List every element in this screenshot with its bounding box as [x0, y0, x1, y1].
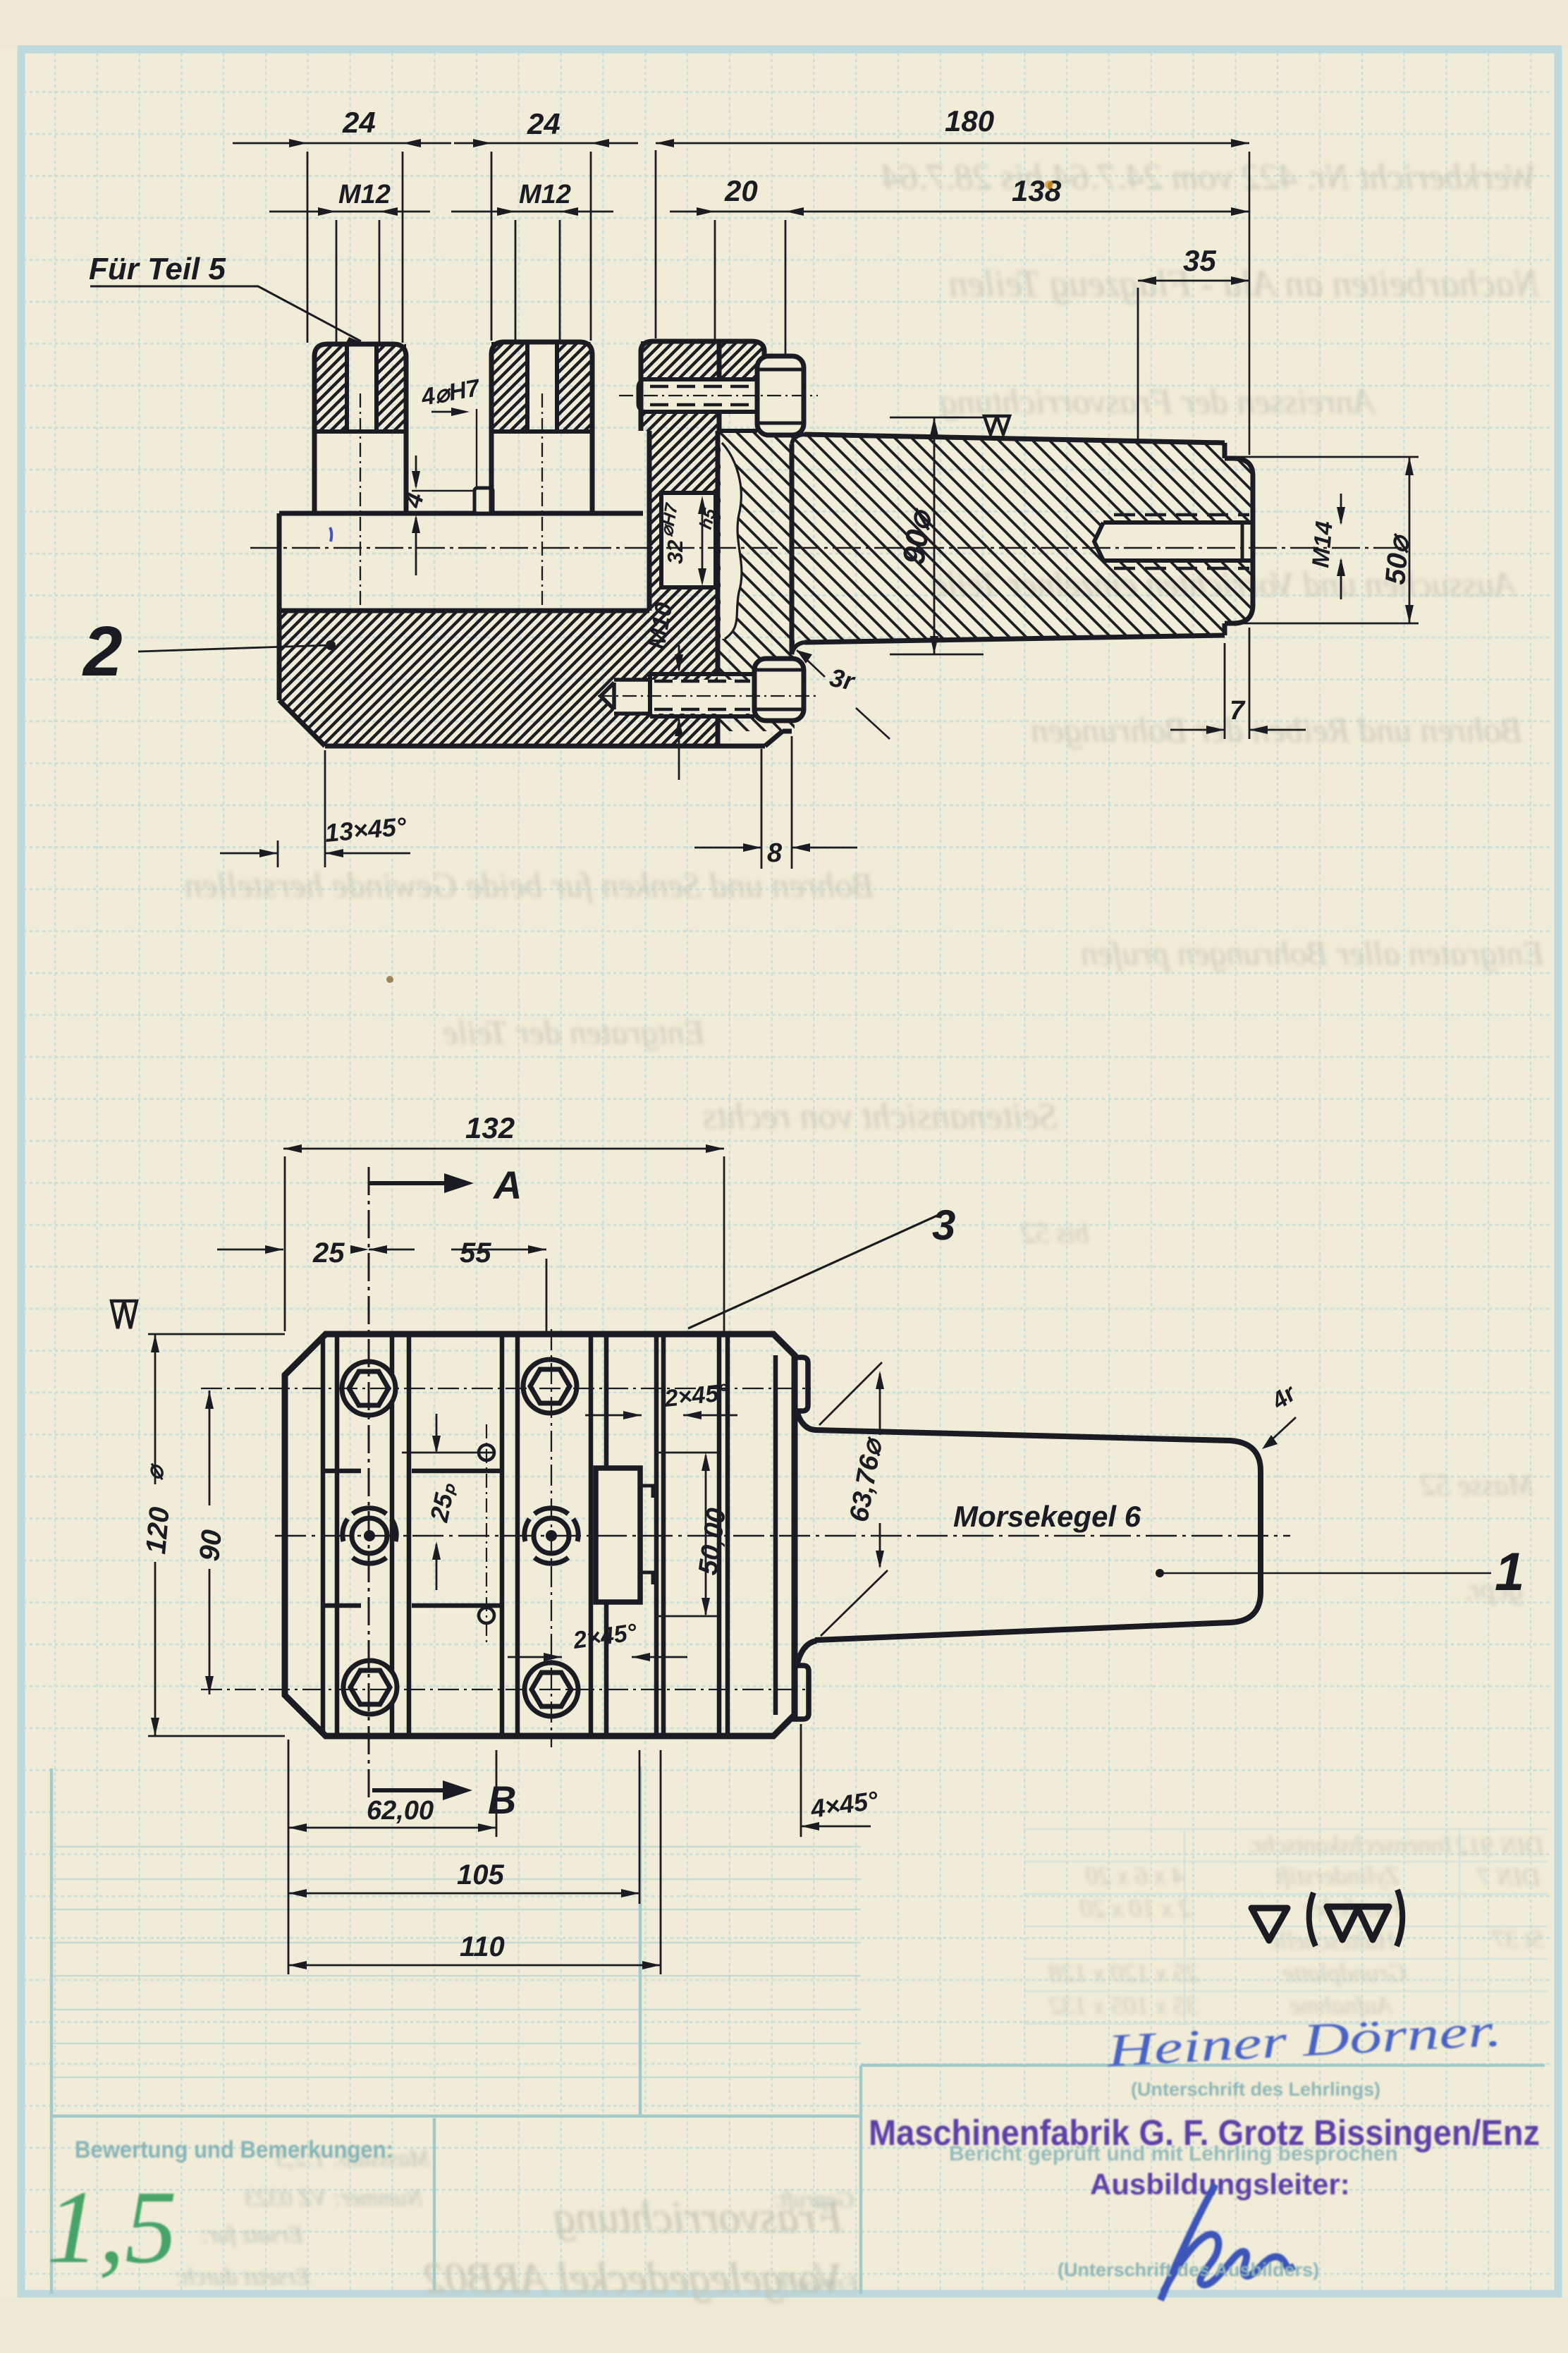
svg-text:50⌀: 50⌀ [1380, 532, 1415, 586]
svg-text:25 x 120 x 128: 25 x 120 x 128 [1049, 1959, 1199, 1987]
svg-text:Ausbildungsleiter:: Ausbildungsleiter: [1090, 2168, 1350, 2201]
svg-text:55: 55 [460, 1237, 491, 1269]
svg-text:bis 52: bis 52 [1021, 1217, 1089, 1249]
svg-text:35: 35 [1183, 244, 1216, 277]
svg-text:1,5: 1,5 [47, 2170, 177, 2285]
svg-text:7: 7 [1230, 696, 1246, 726]
svg-text:Nacharbeiten an Alu - Flugze: Nacharbeiten an Alu - Flugzeug Teilen [949, 262, 1541, 305]
svg-text:Innensechskantschr.: Innensechskantschr. [1249, 1831, 1453, 1859]
svg-text:Ersetzt durch:: Ersetzt durch: [175, 2264, 311, 2290]
svg-text:Entgraten aller Bohrungen p: Entgraten aller Bohrungen prufen [1081, 935, 1545, 972]
svg-text:(Unterschrift des Ausbilders): (Unterschrift des Ausbilders) [1058, 2259, 1319, 2280]
svg-text:Werkbericht Nr. 422 vom 24.7.: Werkbericht Nr. 422 vom 24.7.64 bis 28.7… [881, 157, 1537, 197]
svg-text:1: 1 [1495, 1542, 1524, 1602]
svg-text:Grundplatte: Grundplatte [1282, 1959, 1407, 1987]
svg-text:M12: M12 [338, 180, 391, 209]
svg-text:Entgraten der Teile: Entgraten der Teile [443, 1014, 706, 1051]
svg-text:B: B [488, 1778, 516, 1822]
svg-text:180: 180 [945, 104, 994, 137]
svg-text:32: 32 [663, 540, 687, 564]
svg-text:St 37: St 37 [1491, 1925, 1544, 1953]
svg-text:24: 24 [527, 107, 561, 140]
svg-text:24: 24 [342, 106, 376, 139]
svg-text:Seitenansicht von rechts: Seitenansicht von rechts [703, 1096, 1058, 1137]
svg-text:138: 138 [1012, 174, 1062, 207]
svg-text:(Unterschrift des Lehrlings): (Unterschrift des Lehrlings) [1131, 2079, 1380, 2100]
svg-text:62,00: 62,00 [367, 1796, 434, 1826]
svg-text:Für Teil 5: Für Teil 5 [89, 252, 226, 286]
svg-text:Ersatz fur:: Ersatz fur: [200, 2222, 304, 2248]
svg-text:25: 25 [312, 1237, 345, 1269]
svg-text:4 x 6 x 20: 4 x 6 x 20 [1086, 1862, 1184, 1890]
svg-text:Bericht geprüft und mit Lehrli: Bericht geprüft und mit Lehrling besproc… [949, 2142, 1398, 2165]
svg-text:132: 132 [465, 1111, 515, 1144]
svg-text:A: A [492, 1163, 522, 1207]
svg-text:Entwurf:: Entwurf: [773, 2271, 859, 2297]
svg-text:35 x 105 x 132: 35 x 105 x 132 [1049, 1991, 1199, 2019]
svg-text:Masse 52: Masse 52 [1421, 1469, 1534, 1502]
svg-text:20: 20 [724, 174, 758, 207]
svg-text:2: 2 [82, 612, 123, 691]
svg-text:Bewertung und Bemerkungen:: Bewertung und Bemerkungen: [75, 2137, 393, 2163]
svg-text:3: 3 [932, 1202, 955, 1249]
svg-text:Morsekegel 6: Morsekegel 6 [953, 1500, 1141, 1533]
svg-text:Nummer: VZ 0323: Nummer: VZ 0323 [245, 2185, 424, 2211]
svg-text:M12: M12 [519, 180, 571, 209]
svg-text:8: 8 [767, 838, 783, 868]
svg-text:120: 120 [140, 1505, 176, 1555]
svg-text:90: 90 [194, 1529, 228, 1563]
svg-text:105: 105 [457, 1859, 504, 1890]
svg-text:Bohren und Senken fur beide: Bohren und Senken fur beide Gewinde hers… [185, 865, 874, 905]
svg-text:DIN 912: DIN 912 [1456, 1832, 1545, 1860]
svg-text:110: 110 [460, 1931, 505, 1962]
svg-text:M14: M14 [1307, 520, 1338, 568]
svg-text:DIN 7: DIN 7 [1476, 1863, 1541, 1891]
svg-text:Zylinderstift: Zylinderstift [1275, 1862, 1399, 1890]
svg-text:2 x 10 x 20: 2 x 10 x 20 [1080, 1894, 1192, 1922]
svg-text:Gepruft:: Gepruft: [772, 2187, 855, 2213]
